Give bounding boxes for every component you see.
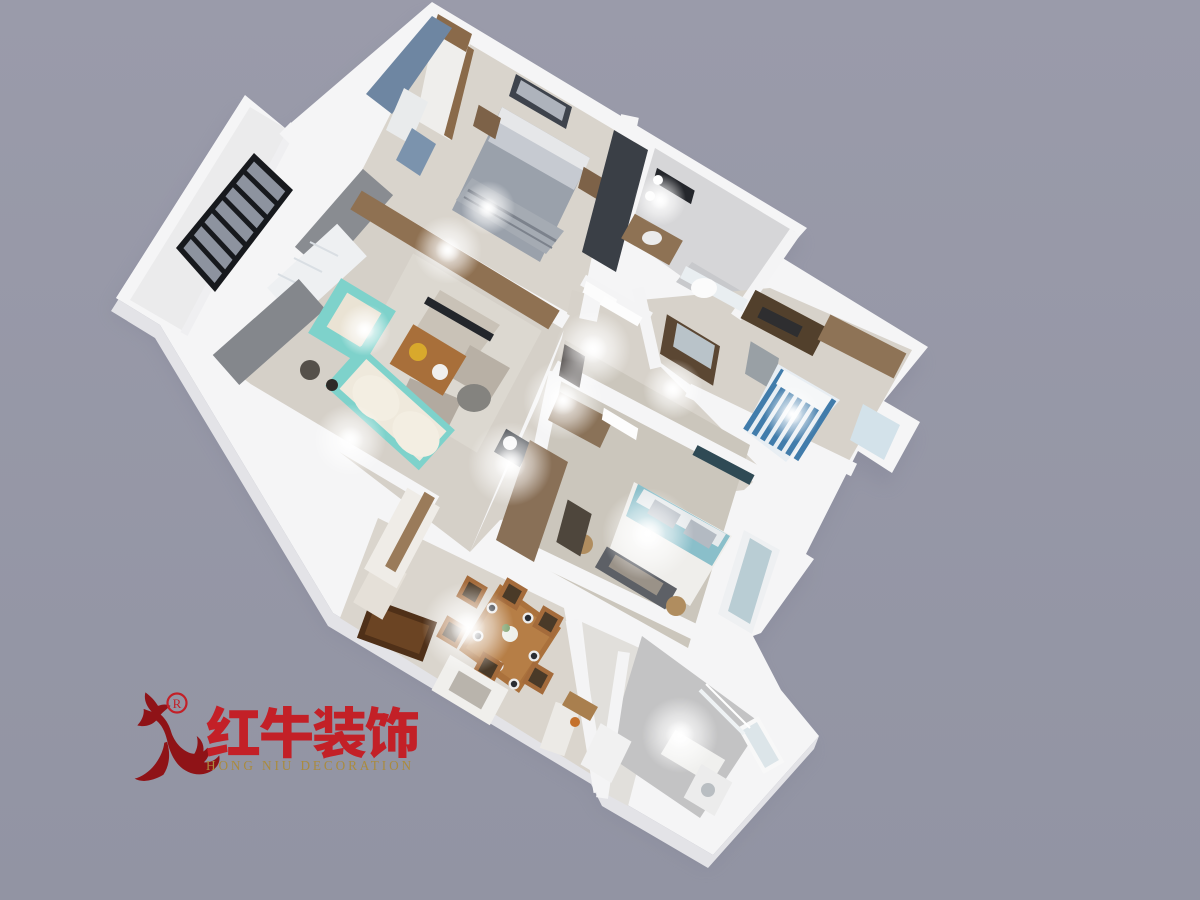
svg-text:R: R [173,696,182,711]
svg-text:HONG NIU DECORATION: HONG NIU DECORATION [206,759,414,774]
